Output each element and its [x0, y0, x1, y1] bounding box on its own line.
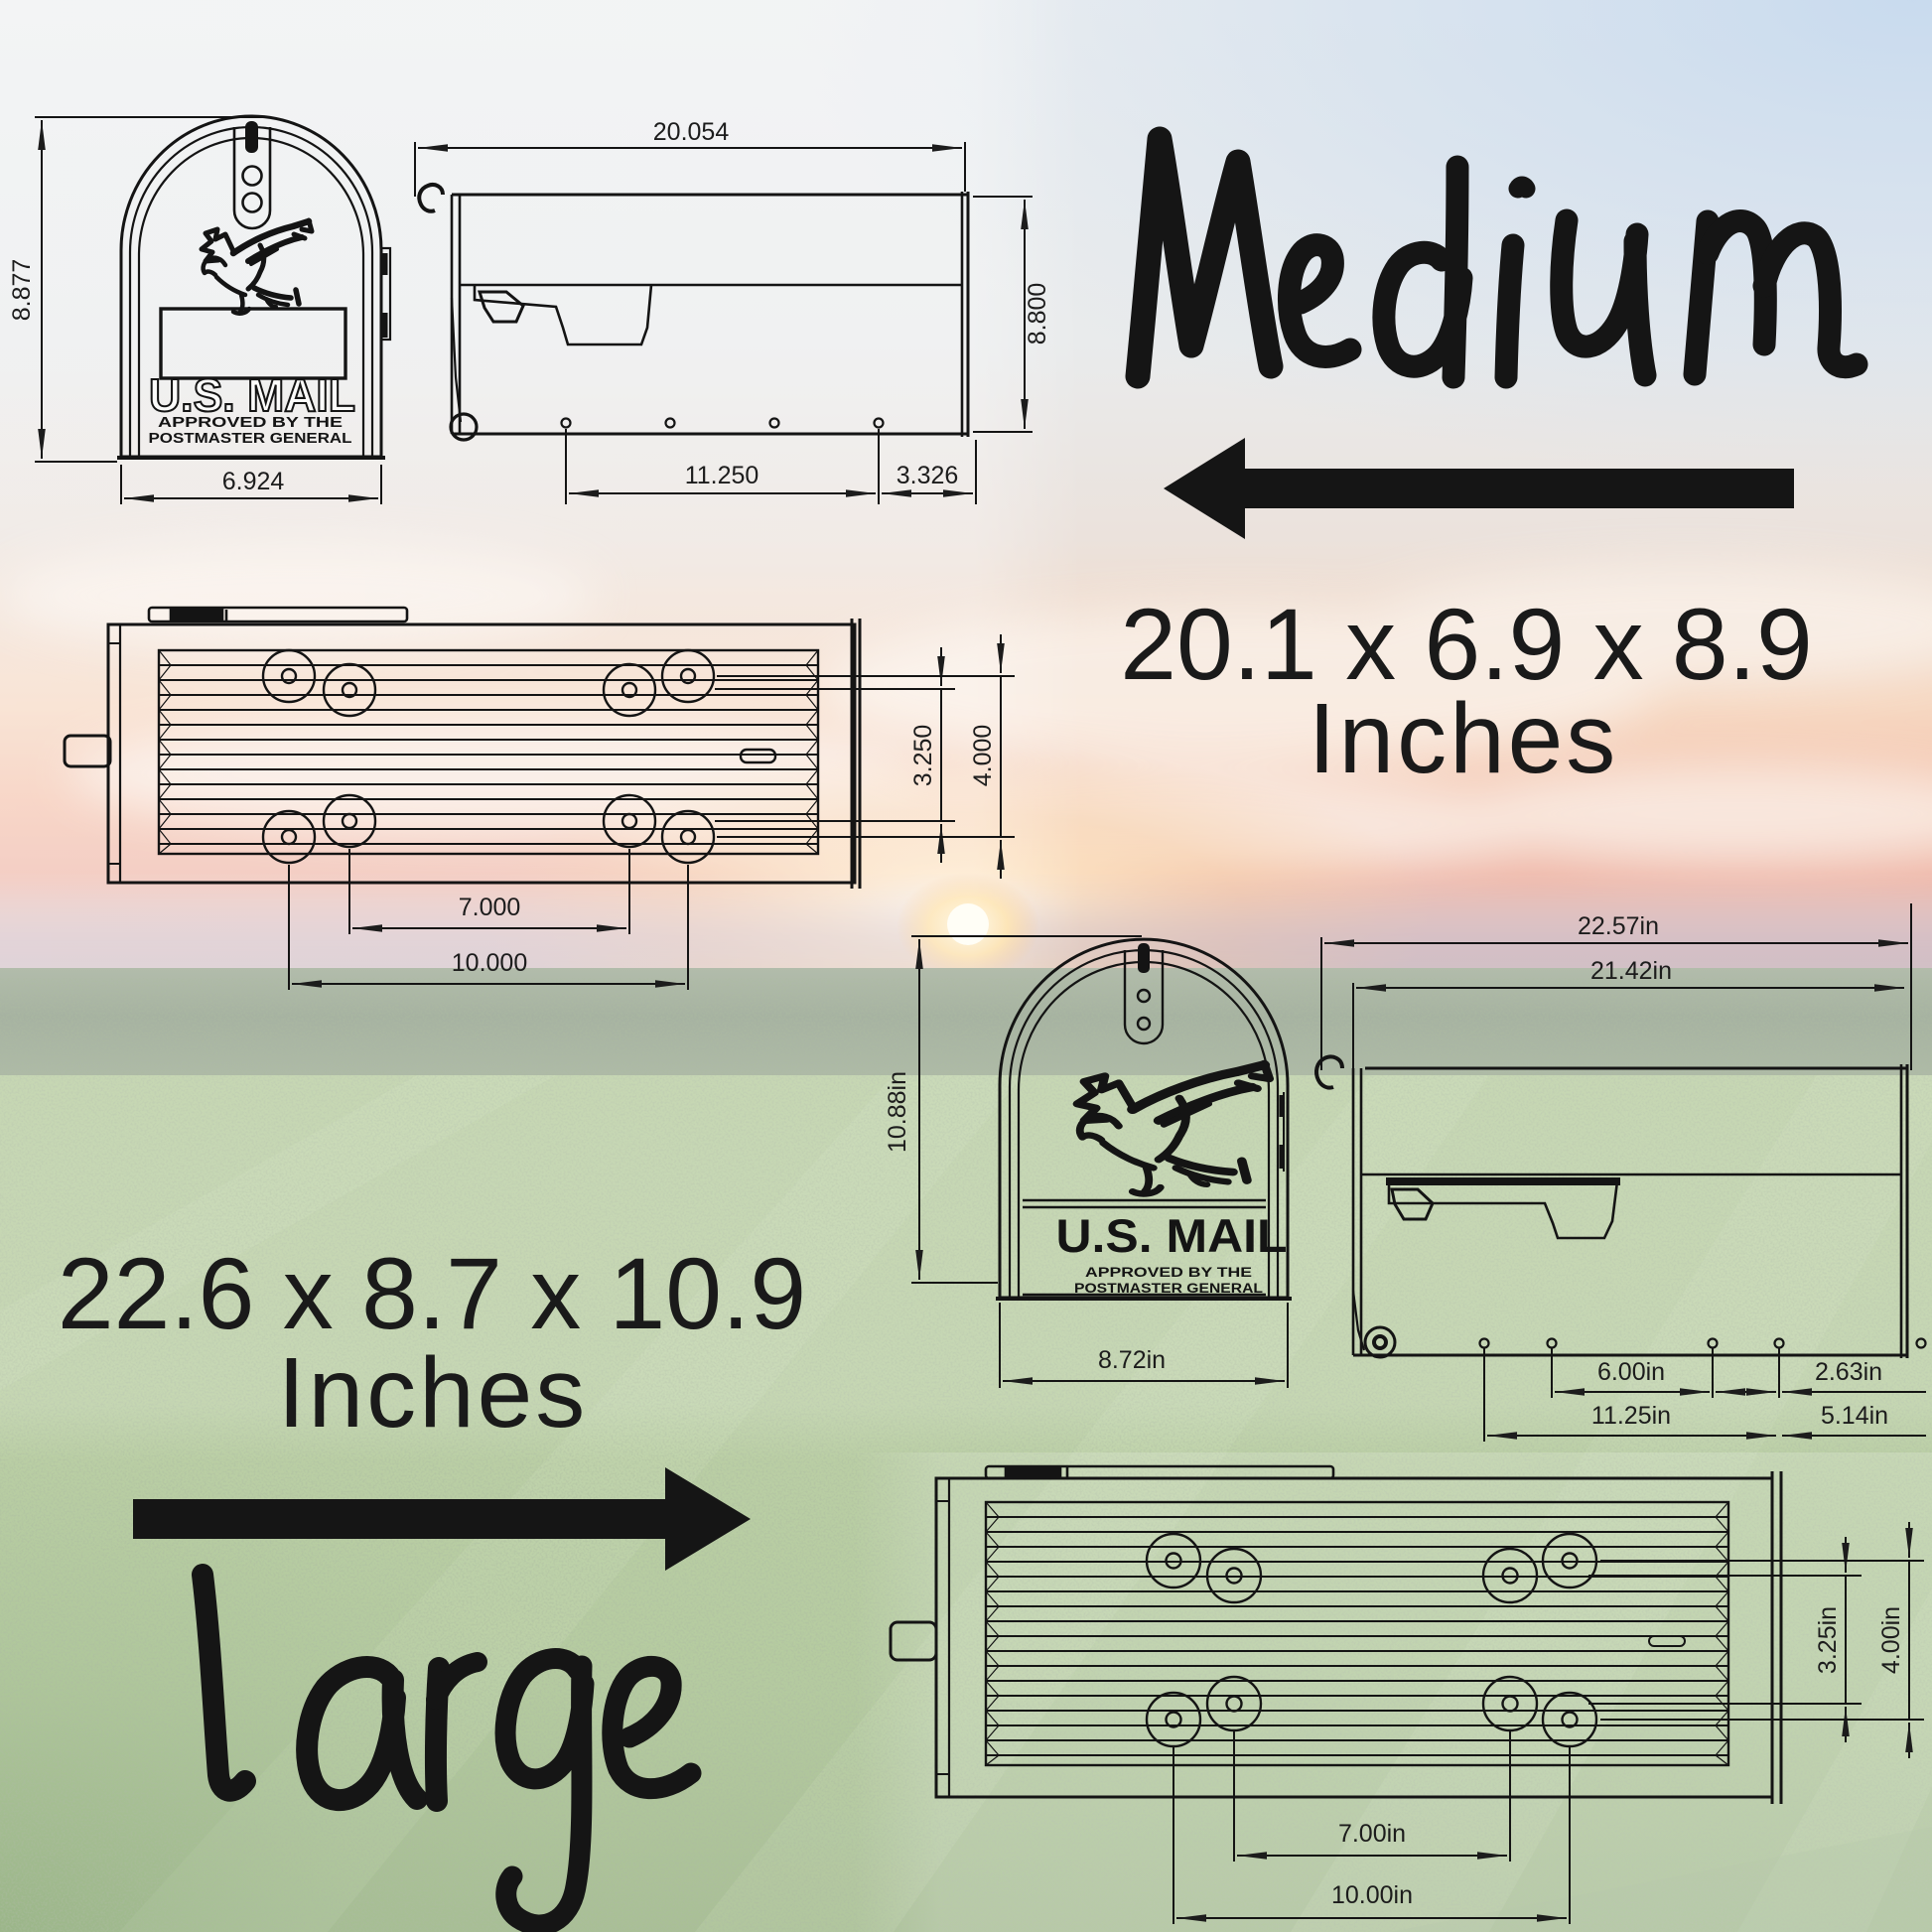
svg-text:4.00in: 4.00in — [1877, 1606, 1905, 1674]
svg-text:7.00in: 7.00in — [1338, 1820, 1406, 1848]
svg-text:APPROVED BY THE: APPROVED BY THE — [158, 415, 343, 431]
svg-text:20.054: 20.054 — [653, 118, 730, 146]
svg-text:3.326: 3.326 — [897, 462, 959, 489]
svg-text:2.63in: 2.63in — [1815, 1358, 1882, 1386]
svg-text:11.25in: 11.25in — [1591, 1402, 1671, 1430]
svg-text:Inches: Inches — [278, 1337, 589, 1449]
svg-text:10.000: 10.000 — [452, 949, 527, 977]
svg-text:8.72in: 8.72in — [1098, 1346, 1166, 1374]
svg-text:22.6 x 8.7 x 10.9: 22.6 x 8.7 x 10.9 — [58, 1237, 806, 1350]
svg-text:8.877: 8.877 — [8, 259, 36, 322]
svg-text:4.000: 4.000 — [969, 725, 997, 787]
svg-text:APPROVED BY THE: APPROVED BY THE — [1085, 1265, 1252, 1280]
svg-text:7.000: 7.000 — [459, 894, 521, 921]
svg-text:8.800: 8.800 — [1024, 283, 1051, 345]
svg-text:POSTMASTER GENERAL: POSTMASTER GENERAL — [1074, 1281, 1263, 1296]
svg-text:3.250: 3.250 — [909, 725, 937, 787]
svg-text:3.25in: 3.25in — [1814, 1606, 1842, 1674]
svg-text:U.S. MAIL: U.S. MAIL — [149, 369, 355, 421]
svg-text:11.250: 11.250 — [685, 462, 759, 489]
svg-text:21.42in: 21.42in — [1590, 957, 1672, 985]
svg-text:U.S. MAIL: U.S. MAIL — [1056, 1209, 1288, 1262]
svg-text:Inches: Inches — [1309, 683, 1619, 794]
svg-text:6.924: 6.924 — [222, 468, 285, 495]
svg-text:10.88in: 10.88in — [884, 1071, 911, 1153]
svg-text:5.14in: 5.14in — [1821, 1402, 1888, 1430]
svg-text:10.00in: 10.00in — [1331, 1881, 1413, 1909]
svg-text:POSTMASTER GENERAL: POSTMASTER GENERAL — [149, 431, 352, 447]
svg-text:6.00in: 6.00in — [1597, 1358, 1665, 1386]
svg-text:22.57in: 22.57in — [1578, 912, 1659, 940]
